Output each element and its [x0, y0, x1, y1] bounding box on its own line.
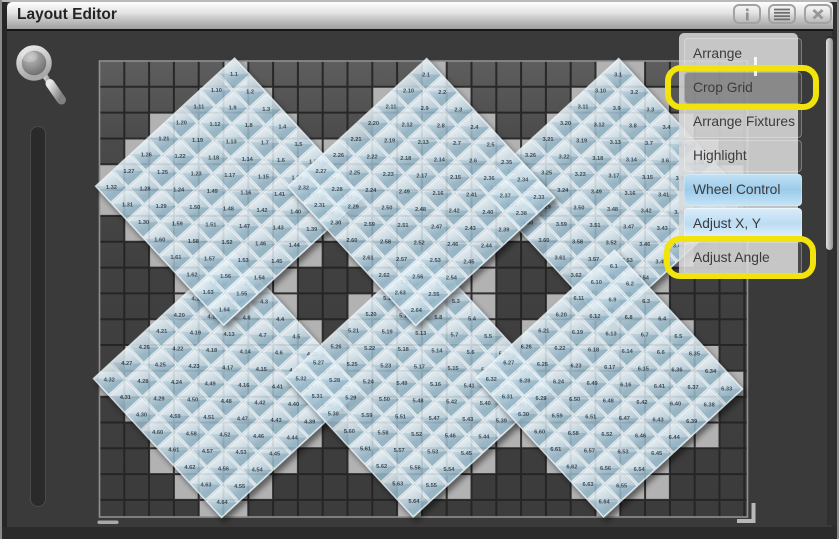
svg-text:2.15: 2.15 — [450, 175, 461, 181]
svg-text:3.57: 3.57 — [588, 257, 599, 263]
svg-text:2.38: 2.38 — [516, 211, 527, 217]
svg-text:2.45: 2.45 — [463, 260, 474, 266]
svg-text:1.9: 1.9 — [229, 106, 237, 112]
svg-text:6.24: 6.24 — [553, 380, 565, 386]
svg-text:3.12: 3.12 — [594, 122, 605, 128]
svg-text:3.60: 3.60 — [538, 238, 549, 244]
svg-text:5.53: 5.53 — [427, 449, 438, 455]
svg-text:2.62: 2.62 — [379, 273, 390, 279]
svg-text:1.14: 1.14 — [242, 157, 254, 163]
svg-text:4.40: 4.40 — [288, 402, 299, 408]
svg-text:1.51: 1.51 — [205, 223, 216, 229]
svg-text:5.49: 5.49 — [396, 381, 407, 387]
svg-text:5.24: 5.24 — [363, 379, 375, 385]
svg-text:6.62: 6.62 — [566, 464, 577, 470]
svg-text:2.44: 2.44 — [481, 243, 493, 249]
svg-text:1.58: 1.58 — [188, 239, 199, 245]
svg-text:6.2: 6.2 — [626, 282, 634, 288]
svg-text:4.31: 4.31 — [120, 395, 131, 401]
svg-text:4.23: 4.23 — [189, 364, 200, 370]
svg-text:6.43: 6.43 — [653, 417, 664, 423]
svg-text:4.22: 4.22 — [172, 346, 183, 352]
svg-text:5.4: 5.4 — [468, 316, 477, 322]
svg-text:6.8: 6.8 — [625, 315, 633, 321]
svg-text:6.45: 6.45 — [651, 451, 662, 457]
svg-text:6.55: 6.55 — [616, 483, 627, 489]
svg-text:6.9: 6.9 — [608, 298, 616, 304]
svg-text:3.1: 3.1 — [614, 72, 622, 78]
svg-text:6.36: 6.36 — [671, 368, 682, 374]
svg-text:6.34: 6.34 — [705, 369, 717, 375]
svg-text:2.4: 2.4 — [470, 125, 479, 131]
svg-text:5.42: 5.42 — [446, 400, 457, 406]
svg-text:6.25: 6.25 — [537, 362, 548, 368]
svg-text:5.41: 5.41 — [464, 384, 475, 390]
svg-text:2.33: 2.33 — [533, 195, 544, 201]
svg-text:4.55: 4.55 — [234, 484, 245, 490]
svg-text:4.45: 4.45 — [269, 452, 280, 458]
svg-text:6.17: 6.17 — [604, 365, 615, 371]
svg-text:1.28: 1.28 — [139, 186, 150, 192]
svg-text:3.7: 3.7 — [645, 141, 653, 147]
svg-text:6.31: 6.31 — [502, 394, 513, 400]
svg-text:6.4: 6.4 — [658, 317, 667, 323]
svg-text:6.61: 6.61 — [550, 447, 561, 453]
svg-text:1.57: 1.57 — [204, 256, 215, 262]
svg-text:6.21: 6.21 — [538, 328, 549, 334]
svg-text:1.26: 1.26 — [141, 153, 152, 159]
svg-text:6.38: 6.38 — [704, 403, 715, 409]
svg-text:2.30: 2.30 — [330, 220, 341, 226]
svg-text:2.23: 2.23 — [383, 172, 394, 178]
svg-text:2.21: 2.21 — [350, 137, 361, 143]
svg-text:1.41: 1.41 — [274, 192, 285, 198]
svg-text:1.56: 1.56 — [220, 274, 231, 280]
svg-text:4.46: 4.46 — [253, 434, 264, 440]
svg-text:2.7: 2.7 — [453, 141, 461, 147]
svg-text:6.44: 6.44 — [669, 435, 681, 441]
svg-text:4.56: 4.56 — [218, 466, 229, 472]
svg-text:6.1: 6.1 — [610, 264, 618, 270]
svg-text:3.43: 3.43 — [657, 226, 668, 232]
svg-text:6.39: 6.39 — [686, 419, 697, 425]
svg-text:2.42: 2.42 — [449, 208, 460, 214]
svg-text:5.8: 5.8 — [434, 315, 442, 321]
svg-text:6.11: 6.11 — [573, 296, 584, 302]
svg-text:5.45: 5.45 — [461, 451, 472, 457]
svg-text:1.48: 1.48 — [223, 207, 234, 213]
svg-text:3.19: 3.19 — [576, 138, 587, 144]
svg-text:1.11: 1.11 — [194, 104, 205, 110]
svg-text:2.36: 2.36 — [484, 176, 495, 182]
svg-text:2.55: 2.55 — [428, 292, 439, 298]
svg-text:4.32: 4.32 — [104, 377, 115, 383]
svg-text:5.52: 5.52 — [411, 432, 422, 438]
svg-text:2.18: 2.18 — [400, 156, 411, 162]
svg-text:4.30: 4.30 — [136, 412, 147, 418]
svg-text:4.57: 4.57 — [202, 449, 213, 455]
svg-text:6.52: 6.52 — [601, 432, 612, 438]
svg-text:3.58: 3.58 — [572, 239, 583, 245]
svg-text:5.57: 5.57 — [394, 448, 405, 454]
svg-text:4.20: 4.20 — [174, 313, 185, 319]
svg-text:1.15: 1.15 — [258, 174, 269, 180]
svg-text:5.46: 5.46 — [445, 433, 456, 439]
svg-text:4.59: 4.59 — [170, 414, 181, 420]
svg-text:2.10: 2.10 — [403, 89, 414, 95]
svg-text:1.62: 1.62 — [186, 272, 197, 278]
svg-text:1.19: 1.19 — [192, 138, 203, 144]
svg-text:1.49: 1.49 — [207, 189, 218, 195]
svg-text:6.56: 6.56 — [600, 466, 611, 472]
svg-text:5.28: 5.28 — [329, 378, 340, 384]
svg-text:1.22: 1.22 — [174, 154, 185, 160]
svg-text:2.52: 2.52 — [414, 241, 425, 247]
svg-text:2.1: 2.1 — [422, 72, 430, 78]
svg-text:6.23: 6.23 — [571, 364, 582, 370]
svg-text:6.26: 6.26 — [521, 345, 532, 351]
svg-text:3.20: 3.20 — [560, 121, 571, 127]
svg-text:1.60: 1.60 — [154, 237, 165, 243]
svg-text:3.41: 3.41 — [658, 192, 669, 198]
svg-text:4.47: 4.47 — [237, 417, 248, 423]
svg-text:3.14: 3.14 — [626, 157, 638, 163]
svg-text:6.14: 6.14 — [622, 349, 634, 355]
svg-text:1.12: 1.12 — [210, 122, 221, 128]
svg-text:5.18: 5.18 — [398, 347, 409, 353]
svg-text:1.59: 1.59 — [172, 221, 183, 227]
svg-text:6.37: 6.37 — [688, 385, 699, 391]
svg-text:4.41: 4.41 — [272, 384, 283, 390]
svg-text:4.51: 4.51 — [203, 415, 214, 421]
svg-text:3.46: 3.46 — [639, 242, 650, 248]
svg-text:6.30: 6.30 — [518, 412, 529, 418]
svg-text:2.47: 2.47 — [431, 225, 442, 231]
svg-text:5.43: 5.43 — [462, 417, 473, 423]
svg-text:4.53: 4.53 — [236, 450, 247, 456]
svg-text:1.24: 1.24 — [173, 188, 185, 194]
svg-text:4.17: 4.17 — [222, 365, 233, 371]
svg-text:2.48: 2.48 — [415, 207, 426, 213]
svg-text:1.64: 1.64 — [219, 308, 231, 314]
svg-text:3.8: 3.8 — [629, 124, 637, 130]
svg-text:4.6: 4.6 — [275, 351, 283, 357]
svg-text:2.61: 2.61 — [362, 255, 373, 261]
svg-text:2.63: 2.63 — [395, 290, 406, 296]
svg-text:1.30: 1.30 — [138, 220, 149, 226]
svg-text:3.26: 3.26 — [525, 153, 536, 159]
svg-text:2.40: 2.40 — [482, 210, 493, 216]
svg-text:6.29: 6.29 — [536, 396, 547, 402]
svg-text:5.63: 5.63 — [392, 482, 403, 488]
svg-text:6.60: 6.60 — [534, 429, 545, 435]
svg-text:6.47: 6.47 — [619, 416, 630, 422]
svg-text:4.24: 4.24 — [171, 380, 183, 386]
svg-text:1.29: 1.29 — [156, 204, 167, 210]
svg-text:3.59: 3.59 — [556, 222, 567, 228]
svg-text:3.47: 3.47 — [623, 225, 634, 231]
svg-text:1.18: 1.18 — [208, 155, 219, 161]
svg-text:4.25: 4.25 — [155, 363, 166, 369]
svg-text:5.26: 5.26 — [330, 344, 341, 350]
svg-text:4.15: 4.15 — [256, 367, 267, 373]
svg-text:1.10: 1.10 — [211, 88, 222, 94]
svg-text:6.10: 6.10 — [591, 280, 602, 286]
svg-text:2.49: 2.49 — [399, 190, 410, 196]
svg-text:1.8: 1.8 — [245, 123, 253, 129]
svg-text:2.54: 2.54 — [446, 276, 458, 282]
svg-text:5.13: 5.13 — [415, 331, 426, 337]
svg-text:5.22: 5.22 — [364, 346, 375, 352]
svg-text:2.39: 2.39 — [498, 227, 509, 233]
svg-text:3.49: 3.49 — [591, 190, 602, 196]
svg-text:2.51: 2.51 — [397, 223, 408, 229]
svg-text:2.34: 2.34 — [517, 178, 529, 184]
svg-text:2.59: 2.59 — [364, 222, 375, 228]
svg-text:5.15: 5.15 — [447, 366, 458, 372]
svg-text:3.24: 3.24 — [557, 188, 569, 194]
svg-text:6.19: 6.19 — [572, 330, 583, 336]
svg-text:6.28: 6.28 — [519, 378, 530, 384]
svg-text:6.57: 6.57 — [584, 448, 595, 454]
svg-text:6.3: 6.3 — [642, 299, 650, 305]
svg-text:5.31: 5.31 — [312, 394, 323, 400]
svg-text:5.16: 5.16 — [430, 382, 441, 388]
svg-text:4.43: 4.43 — [271, 418, 282, 424]
svg-text:2.19: 2.19 — [384, 138, 395, 144]
svg-text:2.3: 2.3 — [454, 108, 462, 114]
svg-text:6.6: 6.6 — [657, 350, 665, 356]
svg-text:4.21: 4.21 — [156, 329, 167, 335]
svg-text:6.59: 6.59 — [552, 413, 563, 419]
svg-text:3.16: 3.16 — [624, 191, 635, 197]
svg-text:2.35: 2.35 — [501, 160, 512, 166]
svg-text:2.12: 2.12 — [402, 122, 413, 128]
svg-text:4.4: 4.4 — [276, 317, 285, 323]
svg-text:2.50: 2.50 — [381, 206, 392, 212]
svg-text:4.48: 4.48 — [221, 399, 232, 405]
svg-text:4.54: 4.54 — [252, 468, 264, 474]
svg-text:5.7: 5.7 — [450, 332, 458, 338]
svg-text:4.50: 4.50 — [187, 398, 198, 404]
svg-text:1.42: 1.42 — [257, 208, 268, 214]
svg-text:2.29: 2.29 — [348, 204, 359, 210]
svg-text:2.20: 2.20 — [368, 121, 379, 127]
svg-text:4.27: 4.27 — [121, 361, 132, 367]
svg-text:1.2: 1.2 — [246, 90, 254, 96]
svg-text:2.26: 2.26 — [333, 153, 344, 159]
svg-text:5.50: 5.50 — [379, 397, 390, 403]
svg-text:4.64: 4.64 — [217, 500, 229, 506]
svg-text:4.8: 4.8 — [243, 316, 251, 322]
svg-text:6.58: 6.58 — [568, 431, 579, 437]
svg-text:6.22: 6.22 — [554, 346, 565, 352]
svg-text:2.5: 2.5 — [487, 143, 495, 149]
svg-text:2.2: 2.2 — [438, 90, 446, 96]
svg-text:6.53: 6.53 — [618, 450, 629, 456]
svg-text:4.5: 4.5 — [292, 335, 300, 341]
svg-text:5.64: 5.64 — [408, 499, 420, 505]
svg-text:1.44: 1.44 — [289, 243, 301, 249]
svg-text:4.63: 4.63 — [201, 482, 212, 488]
svg-text:6.5: 6.5 — [674, 334, 682, 340]
svg-text:5.47: 5.47 — [429, 416, 440, 422]
svg-text:5.23: 5.23 — [380, 363, 391, 369]
svg-text:1.47: 1.47 — [239, 224, 250, 230]
svg-text:3.48: 3.48 — [607, 207, 618, 213]
svg-text:3.11: 3.11 — [578, 105, 589, 111]
svg-text:1.20: 1.20 — [176, 120, 187, 126]
svg-text:4.42: 4.42 — [254, 400, 265, 406]
svg-text:5.14: 5.14 — [431, 349, 443, 355]
svg-text:1.45: 1.45 — [271, 259, 282, 265]
svg-text:1.13: 1.13 — [226, 139, 237, 145]
svg-text:6.13: 6.13 — [606, 331, 617, 337]
svg-text:6.33: 6.33 — [721, 387, 732, 393]
svg-text:4.58: 4.58 — [186, 431, 197, 437]
svg-text:5.39: 5.39 — [496, 419, 507, 425]
svg-text:6.49: 6.49 — [587, 381, 598, 387]
svg-text:1.7: 1.7 — [261, 141, 269, 147]
svg-text:3.9: 3.9 — [613, 106, 621, 112]
svg-text:2.57: 2.57 — [396, 257, 407, 263]
svg-text:2.6: 2.6 — [469, 159, 477, 165]
svg-text:3.51: 3.51 — [589, 223, 600, 229]
svg-text:5.54: 5.54 — [443, 467, 455, 473]
svg-text:2.31: 2.31 — [314, 203, 325, 209]
svg-text:5.3: 5.3 — [452, 299, 460, 305]
svg-text:1.53: 1.53 — [238, 258, 249, 264]
svg-text:5.44: 5.44 — [478, 435, 490, 441]
svg-text:2.9: 2.9 — [421, 106, 429, 112]
svg-text:5.48: 5.48 — [412, 398, 423, 404]
svg-text:3.15: 3.15 — [642, 175, 653, 181]
svg-text:5.21: 5.21 — [348, 328, 359, 334]
svg-text:3.3: 3.3 — [646, 108, 654, 114]
svg-text:6.41: 6.41 — [654, 384, 665, 390]
svg-text:3.22: 3.22 — [559, 154, 570, 160]
svg-text:4.3: 4.3 — [260, 300, 268, 306]
svg-text:4.14: 4.14 — [240, 349, 252, 355]
svg-text:6.54: 6.54 — [634, 467, 646, 473]
svg-text:6.16: 6.16 — [620, 382, 631, 388]
svg-text:4.62: 4.62 — [184, 465, 195, 471]
svg-text:2.46: 2.46 — [447, 242, 458, 248]
svg-text:3.18: 3.18 — [592, 156, 603, 162]
svg-text:6.50: 6.50 — [569, 397, 580, 403]
svg-text:1.54: 1.54 — [254, 275, 266, 281]
svg-text:2.24: 2.24 — [365, 188, 377, 194]
svg-text:1.6: 1.6 — [277, 158, 285, 164]
svg-text:2.13: 2.13 — [418, 140, 429, 146]
svg-text:4.13: 4.13 — [224, 332, 235, 338]
svg-text:2.22: 2.22 — [367, 154, 378, 160]
svg-text:5.59: 5.59 — [361, 413, 372, 419]
svg-text:1.3: 1.3 — [262, 107, 270, 113]
svg-text:3.6: 3.6 — [661, 159, 669, 165]
svg-text:2.16: 2.16 — [432, 191, 443, 197]
svg-text:5.62: 5.62 — [376, 464, 387, 470]
svg-text:3.13: 3.13 — [610, 140, 621, 146]
svg-text:5.25: 5.25 — [347, 362, 358, 368]
svg-text:3.42: 3.42 — [641, 208, 652, 214]
svg-text:2.25: 2.25 — [349, 171, 360, 177]
svg-text:5.61: 5.61 — [360, 447, 371, 453]
svg-text:2.11: 2.11 — [386, 105, 397, 111]
svg-text:5.17: 5.17 — [414, 365, 425, 371]
svg-text:1.50: 1.50 — [189, 205, 200, 211]
svg-text:5.40: 5.40 — [480, 401, 491, 407]
svg-text:1.21: 1.21 — [158, 137, 169, 143]
svg-text:3.52: 3.52 — [606, 241, 617, 247]
svg-text:5.60: 5.60 — [344, 429, 355, 435]
svg-text:3.21: 3.21 — [542, 137, 553, 143]
svg-text:6.20: 6.20 — [556, 312, 567, 318]
svg-text:6.63: 6.63 — [583, 482, 594, 488]
svg-text:1.27: 1.27 — [123, 169, 134, 175]
svg-text:3.25: 3.25 — [541, 171, 552, 177]
svg-text:4.52: 4.52 — [219, 433, 230, 439]
svg-text:2.56: 2.56 — [412, 274, 423, 280]
svg-text:4.26: 4.26 — [139, 345, 150, 351]
svg-text:5.56: 5.56 — [410, 466, 421, 472]
svg-text:6.51: 6.51 — [585, 415, 596, 421]
svg-text:4.16: 4.16 — [238, 383, 249, 389]
svg-text:1.52: 1.52 — [221, 240, 232, 246]
svg-text:4.7: 4.7 — [259, 333, 267, 339]
svg-text:2.17: 2.17 — [416, 173, 427, 179]
svg-text:1.32: 1.32 — [106, 185, 117, 191]
svg-text:5.55: 5.55 — [426, 483, 437, 489]
svg-text:6.27: 6.27 — [503, 361, 514, 367]
svg-text:5.30: 5.30 — [328, 412, 339, 418]
svg-text:2.60: 2.60 — [346, 238, 357, 244]
svg-text:2.58: 2.58 — [380, 239, 391, 245]
svg-text:6.18: 6.18 — [588, 347, 599, 353]
svg-text:4.18: 4.18 — [206, 348, 217, 354]
svg-text:4.44: 4.44 — [287, 435, 299, 441]
svg-text:1.4: 1.4 — [278, 125, 287, 131]
svg-text:1.25: 1.25 — [157, 170, 168, 176]
svg-text:6.35: 6.35 — [689, 352, 700, 358]
svg-text:2.64: 2.64 — [411, 308, 423, 314]
svg-text:6.40: 6.40 — [670, 401, 681, 407]
svg-text:5.51: 5.51 — [395, 414, 406, 420]
svg-text:4.28: 4.28 — [137, 379, 148, 385]
svg-text:4.60: 4.60 — [152, 430, 163, 436]
svg-text:1.1: 1.1 — [230, 72, 238, 78]
svg-text:6.42: 6.42 — [636, 400, 647, 406]
svg-text:5.6: 5.6 — [467, 350, 475, 356]
svg-text:2.27: 2.27 — [315, 169, 326, 175]
svg-text:6.64: 6.64 — [599, 499, 611, 505]
svg-text:1.63: 1.63 — [203, 290, 214, 296]
svg-text:3.62: 3.62 — [571, 273, 582, 279]
svg-text:2.41: 2.41 — [466, 192, 477, 198]
svg-text:5.29: 5.29 — [345, 396, 356, 402]
svg-text:2.53: 2.53 — [430, 258, 441, 264]
svg-text:1.16: 1.16 — [240, 190, 251, 196]
svg-text:6.46: 6.46 — [635, 434, 646, 440]
svg-text:5.5: 5.5 — [484, 334, 492, 340]
svg-text:3.50: 3.50 — [573, 206, 584, 212]
svg-text:1.43: 1.43 — [273, 226, 284, 232]
svg-text:6.12: 6.12 — [589, 314, 600, 320]
svg-text:3.17: 3.17 — [608, 173, 619, 179]
svg-text:5.58: 5.58 — [377, 431, 388, 437]
svg-text:1.40: 1.40 — [290, 209, 301, 215]
svg-text:2.14: 2.14 — [434, 157, 446, 163]
